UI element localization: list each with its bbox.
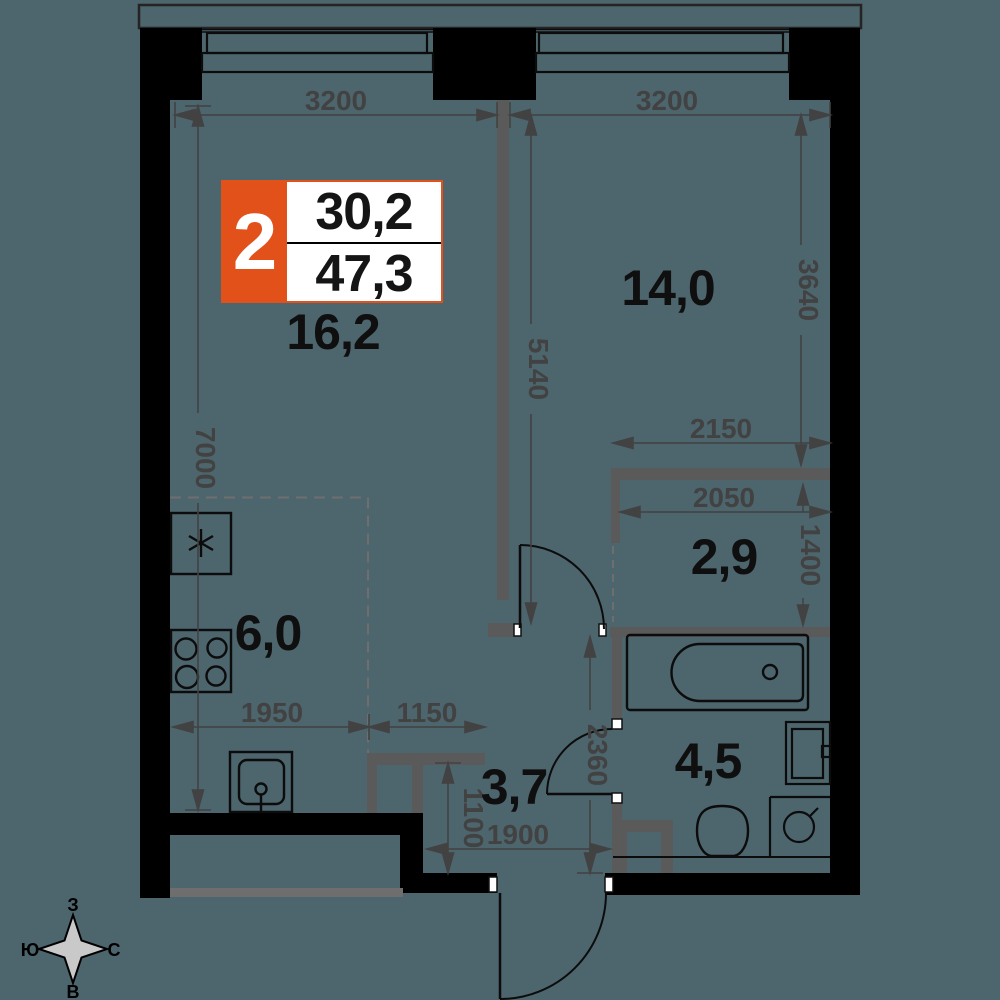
dim-label-3640: 3640 <box>793 259 824 321</box>
dim-label-2050: 2050 <box>693 482 755 513</box>
dim-1950: 1950 <box>173 697 369 740</box>
wall-left <box>140 28 170 898</box>
area-label-living: 16,2 <box>286 303 379 361</box>
wall-living-bottom <box>140 813 423 835</box>
window-left <box>202 30 433 73</box>
dim-label-2150: 2150 <box>690 413 752 444</box>
apartment-badge: 2 30,2 47,3 <box>221 180 443 303</box>
floorplan-drawing: 3200 3200 7000 5140 <box>0 0 1000 1000</box>
compass: З Ю С В <box>21 895 121 1000</box>
dim-1900: 1900 <box>427 819 610 855</box>
dim-7000: 7000 <box>185 106 221 810</box>
area-label-bedroom: 14,0 <box>621 259 714 317</box>
badge-total-area: 47,3 <box>287 242 441 304</box>
kitchen-sink <box>230 752 292 812</box>
jamb-bath-bottom <box>612 793 622 803</box>
dim-label-5140: 5140 <box>523 338 554 400</box>
dim-label-1950: 1950 <box>241 697 303 728</box>
balcony-rail <box>170 888 403 897</box>
dim-label-1400: 1400 <box>795 524 826 586</box>
partition-wardrobe-left <box>611 480 620 543</box>
partition-bathroom-left-upper <box>612 637 622 720</box>
door-entry <box>500 893 606 999</box>
facade-band <box>139 5 861 28</box>
bathroom-sink <box>786 722 831 784</box>
compass-east-label: В <box>67 982 80 1000</box>
dim-label-3200-right: 3200 <box>636 85 698 116</box>
compass-south-label: Ю <box>21 940 40 960</box>
dim-1150: 1150 <box>369 697 485 733</box>
toilet <box>697 806 748 856</box>
dim-label-7000: 7000 <box>190 427 221 489</box>
duct-right <box>661 832 673 873</box>
badge-values: 30,2 47,3 <box>287 182 441 301</box>
kitchen-portal-left <box>367 765 377 813</box>
wall-top-middle <box>433 28 536 100</box>
window-right <box>536 30 789 73</box>
jamb-entry-left <box>489 877 497 892</box>
dim-label-3200-left: 3200 <box>305 85 367 116</box>
compass-star <box>39 915 107 983</box>
compass-north-label: С <box>108 940 121 960</box>
jamb-entry-right <box>605 877 613 892</box>
bathtub-drain <box>763 665 777 679</box>
kitchen-portal-right <box>412 765 423 813</box>
area-label-bathroom: 4,5 <box>675 732 742 790</box>
partition-central <box>497 100 509 600</box>
wall-hall-bottom-left <box>423 873 497 893</box>
dim-3640: 3640 <box>793 115 824 465</box>
compass-west-label: З <box>67 895 78 915</box>
fridge <box>171 513 231 574</box>
partition-wardrobe-top <box>611 468 830 480</box>
dim-3200-right: 3200 <box>510 85 830 128</box>
washing-machine <box>770 797 830 857</box>
duct-left <box>615 832 627 873</box>
kitchen-portal-top <box>367 753 485 765</box>
dim-label-2360: 2360 <box>582 724 613 786</box>
wall-hall-bottom-right <box>605 873 860 895</box>
bathtub <box>627 635 808 710</box>
dim-2150: 2150 <box>613 413 830 449</box>
jamb-bedroom-right <box>599 624 606 636</box>
wall-connector <box>400 813 423 893</box>
dim-label-1900: 1900 <box>487 819 549 850</box>
stove <box>171 630 231 692</box>
dim-label-1150: 1150 <box>397 697 458 728</box>
floorplan-page: 3200 3200 7000 5140 <box>0 0 1000 1000</box>
badge-living-area: 30,2 <box>287 182 441 242</box>
dim-2360: 2360 <box>577 637 613 873</box>
badge-rooms-count: 2 <box>223 182 287 301</box>
area-label-kitchen: 6,0 <box>235 604 302 662</box>
door-entry-swing <box>500 893 606 999</box>
area-label-wardrobe: 2,9 <box>691 528 758 586</box>
area-label-hallway: 3,7 <box>481 758 548 816</box>
wall-right <box>830 28 860 895</box>
duct-top <box>615 820 673 832</box>
